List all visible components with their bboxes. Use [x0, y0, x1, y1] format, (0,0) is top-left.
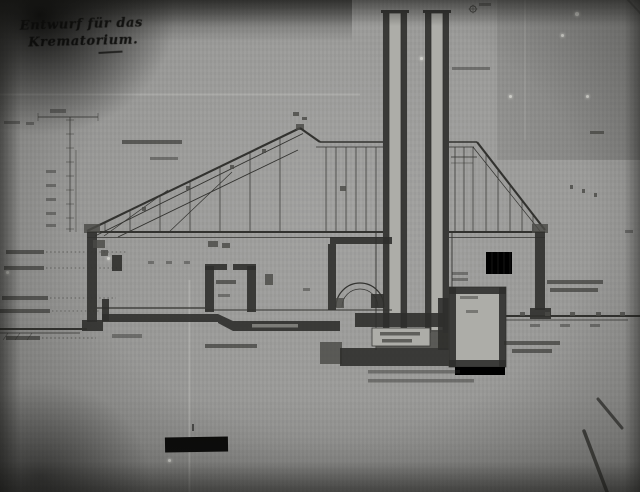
vignette-global	[0, 0, 640, 492]
film-frame: Entwurf für das Krematorium.	[0, 0, 640, 492]
